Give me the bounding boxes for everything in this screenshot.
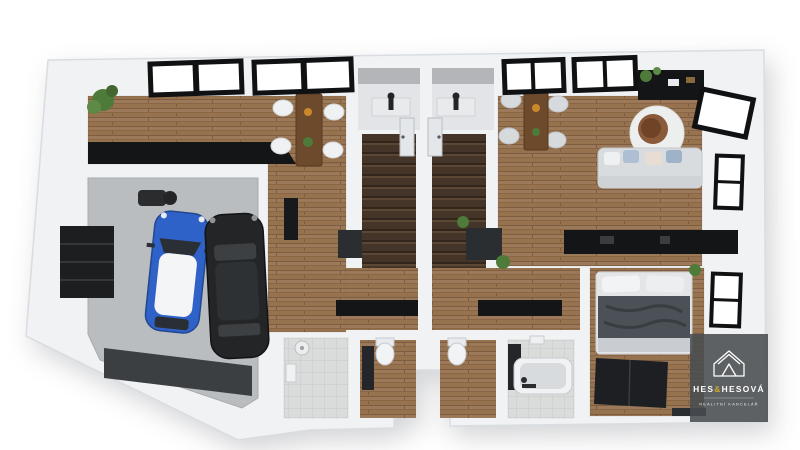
bed-sheet-edge	[598, 338, 690, 352]
sideboard-right	[564, 230, 738, 254]
dining-table-right	[524, 92, 548, 150]
wall-tv-left	[284, 198, 298, 240]
glazing-bank	[571, 55, 638, 93]
hall-plant	[496, 255, 510, 269]
garage-bin	[138, 190, 166, 206]
brand-name: HES&HESOVÁ	[693, 383, 765, 394]
right-wall-window	[715, 156, 743, 209]
bedroom-plant	[689, 264, 701, 276]
wc-cabinet-left	[362, 346, 374, 390]
glazing-bank	[147, 58, 244, 97]
door-handle	[401, 135, 404, 138]
bath-fixture-left	[286, 364, 296, 382]
statue-left	[388, 93, 395, 111]
shower-drain	[300, 346, 304, 350]
toilet-right	[448, 338, 466, 365]
wardrobe	[594, 358, 668, 408]
house-logo-icon	[714, 351, 744, 376]
vestibule-left-shade	[358, 68, 420, 84]
bathtub	[514, 358, 572, 394]
brand-tagline: REALITNÍ KANCELÁŘ	[699, 402, 758, 407]
building	[26, 50, 766, 440]
pillow	[602, 275, 641, 293]
kitchen-console-right	[638, 67, 704, 100]
agency-watermark: HES&HESOVÁ REALITNÍ KANCELÁŘ	[690, 334, 768, 422]
glazing-bank	[501, 57, 566, 95]
door-handle	[437, 135, 440, 138]
statue-right	[453, 93, 460, 111]
right-hall-floor	[432, 268, 580, 330]
toilet-left	[376, 338, 394, 365]
bath-wall-box	[530, 336, 544, 344]
brand-amp: &	[714, 384, 721, 394]
dining-table-left	[296, 94, 322, 166]
hall-sideboard-left	[336, 300, 418, 316]
floorplan-svg	[0, 0, 800, 450]
black-car	[204, 213, 269, 360]
agency-logo: HES&HESOVÁ REALITNÍ KANCELÁŘ	[690, 334, 768, 422]
brand-right: HESOVÁ	[722, 383, 765, 394]
papasan-cushion	[641, 118, 661, 138]
pillow	[646, 275, 685, 292]
sideboard-item	[660, 236, 670, 244]
garage-bin-lid	[163, 191, 177, 205]
right-wall-window	[695, 89, 754, 137]
bedroom-window	[711, 274, 741, 327]
brand-left: HES	[693, 384, 714, 394]
vestibule-right-shade	[432, 68, 494, 84]
hall-sideboard-right	[478, 300, 562, 316]
left-hall-floor	[346, 268, 418, 330]
wardrobe-seam	[629, 360, 630, 406]
desk-right	[466, 228, 502, 260]
sideboard-item	[600, 236, 614, 244]
left-column-floor	[268, 164, 346, 332]
kitchen-counter-left	[88, 142, 296, 164]
bed-blanket	[598, 296, 690, 342]
floorplan-render: HES&HESOVÁ REALITNÍ KANCELÁŘ	[0, 0, 800, 450]
sofa	[598, 148, 702, 188]
glazing-bank	[251, 56, 354, 96]
side-cabinet-left	[338, 230, 362, 258]
desk-plant	[457, 216, 469, 228]
